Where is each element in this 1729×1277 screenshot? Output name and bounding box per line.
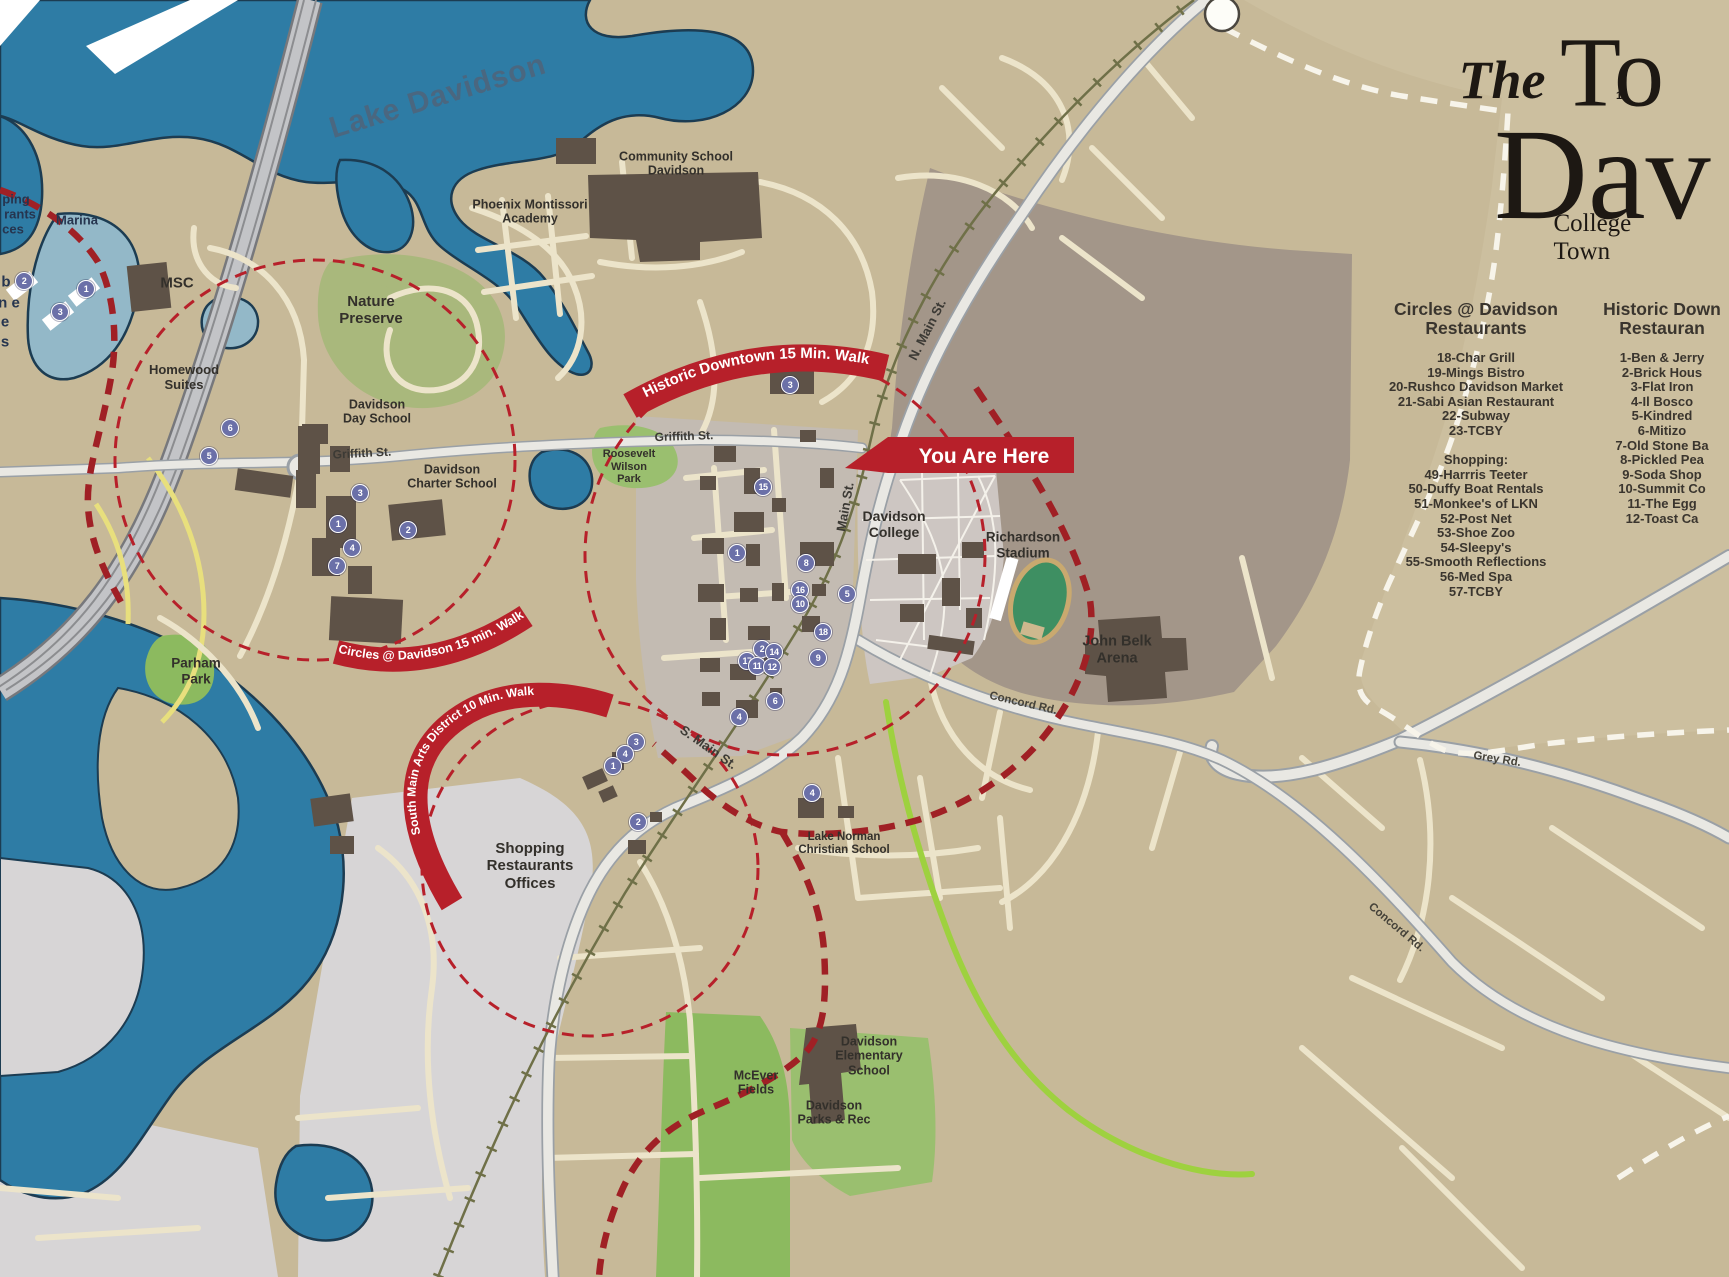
community-school-label: Community School Davidson [619,150,733,179]
legend-item: 54-Sleepy's [1316,541,1636,556]
roosevelt-wilson-park-label: Roosevelt Wilson Park [603,448,656,486]
lake-norman-christian-label: Lake Norman Christian School [798,831,889,857]
legend-historic-header: Historic Down [1502,300,1729,319]
legend-item: 4-Il Bosco [1502,395,1729,410]
richardson-stadium-label: Richardson Stadium [986,529,1060,560]
route-shield [1205,0,1239,31]
davidson-college-label: Davidson College [862,508,925,540]
numbered-marker-8: 8 [797,554,815,572]
legend-item: 9-Soda Shop [1502,468,1729,483]
john-belk-arena-label: John Belk Arena [1082,633,1151,666]
legend-item: 57-TCBY [1316,585,1636,600]
legend-item: 8-Pickled Pea [1502,453,1729,468]
numbered-marker-4: 4 [730,708,748,726]
legend-item: 2-Brick Hous [1502,366,1729,381]
numbered-marker-2: 2 [399,521,417,539]
legend-item: 3-Flat Iron [1502,380,1729,395]
shopping-district-label: Shopping Restaurants Offices [487,840,574,892]
numbered-marker-4: 4 [803,784,821,802]
numbered-marker-2: 2 [15,272,33,290]
homewood-suites-label: Homewood Suites [149,363,219,393]
map-overlay: Historic Downtown 15 Min. Walk Circles @… [0,0,1729,1277]
downtown-walk-radius [585,355,985,755]
davidson-charter-school-label: Davidson Charter School [407,463,497,492]
numbered-marker-3: 3 [781,376,799,394]
numbered-marker-1: 1 [728,544,746,562]
legend-historic-list: 1-Ben & Jerry2-Brick Hous3-Flat Iron4-Il… [1502,351,1729,526]
edge-fragment-s: s [1,333,9,350]
numbered-marker-3: 3 [51,303,69,321]
town-boundary [0,190,1091,1277]
numbered-marker-1: 1 [604,757,622,775]
nature-preserve-label: Nature Preserve [339,293,402,328]
numbered-marker-10: 10 [791,595,809,613]
numbered-marker-2: 2 [629,813,647,831]
numbered-marker-3: 3 [351,484,369,502]
numbered-marker-6: 6 [766,692,784,710]
legend-item: 56-Med Spa [1316,570,1636,585]
legend-item: 7-Old Stone Ba [1502,439,1729,454]
numbered-marker-7: 7 [328,557,346,575]
legend-item: 11-The Egg [1502,497,1729,512]
parham-park-label: Parham Park [171,655,221,686]
edge-fragment-ces: ces [2,223,24,238]
legend-item: 6-Mitizo [1502,424,1729,439]
numbered-marker-5: 5 [200,447,218,465]
legend-item: 10-Summit Co [1502,482,1729,497]
numbered-marker-1: 1 [329,515,347,533]
davidson-elementary-label: Davidson Elementary School [835,1034,902,1077]
edge-fragment-rants: rants [4,208,36,223]
edge-fragment-ne: n e [0,294,20,311]
davidson-day-school-label: Davidson Day School [343,398,411,427]
numbered-marker-18: 18 [814,623,832,641]
edge-fragment-b: b [1,273,10,290]
legend-item: 1-Ben & Jerry [1502,351,1729,366]
numbered-marker-5: 5 [838,585,856,603]
legend-historic-header2: Restauran [1502,319,1729,338]
circles-walk-banner: Circles @ Davidson 15 min. Walk [337,608,526,663]
edge-fragment-e: e [1,313,9,330]
msc-label: MSC [160,274,193,291]
title-subtitle: College Town [1554,210,1671,266]
mcever-fields-label: McEver Fields [734,1069,778,1098]
legend-item: 55-Smooth Reflections [1316,555,1636,570]
numbered-marker-12: 12 [763,658,781,676]
svg-text:Circles @ Davidson 15 min. Wal: Circles @ Davidson 15 min. Walk [337,608,526,663]
numbered-marker-6: 6 [221,419,239,437]
title-superscript: 14 [1616,90,1628,102]
numbered-marker-4: 4 [343,539,361,557]
legend-historic-column: Historic Down Restauran 1-Ben & Jerry2-B… [1502,300,1729,526]
legend-item: 12-Toast Ca [1502,512,1729,527]
numbered-marker-9: 9 [809,649,827,667]
legend-item: 5-Kindred [1502,409,1729,424]
griffith-st-east-label: Griffith St. [654,429,713,445]
you-are-here-label: You Are Here [919,445,1050,468]
edge-fragment-ping: ping [2,193,29,208]
numbered-marker-15: 15 [754,478,772,496]
marina-label: Marina [56,214,98,229]
legend-item: 53-Shoe Zoo [1316,526,1636,541]
davidson-parks-rec-label: Davidson Parks & Rec [798,1099,871,1128]
numbered-marker-1: 1 [77,280,95,298]
circles-walk-radius [115,260,515,660]
phoenix-montissori-label: Phoenix Montissori Academy [472,198,587,227]
title-the: The [1459,49,1546,111]
davidson-town-map: Historic Downtown 15 Min. Walk Circles @… [0,0,1729,1277]
you-are-here-banner: You Are Here [845,437,1074,473]
